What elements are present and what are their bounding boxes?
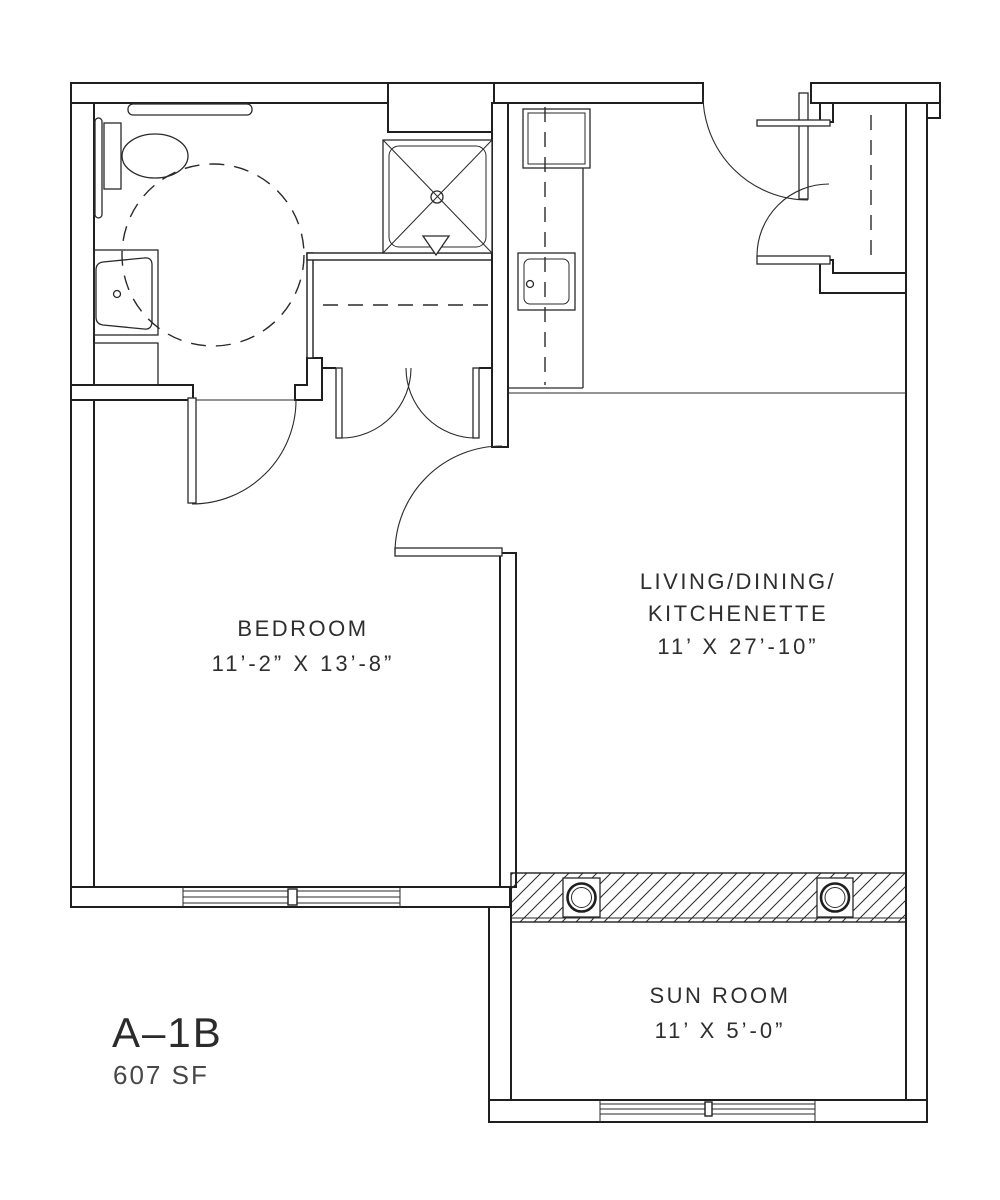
unit-area: 607 SF [113,1060,209,1090]
right-exterior-wall [906,103,927,1122]
refrigerator [523,109,590,168]
bathroom-south-wall [71,385,193,400]
base-cabinet [94,343,158,385]
sunroom-left-wall [489,887,511,1122]
bedroom-door-swing [395,446,502,553]
toilet-bowl [122,134,188,178]
vanity-counter [94,250,158,335]
closet-door-swing-left [341,368,411,438]
bathroom-door-leaf [188,398,196,503]
floor-plan-sheet: BEDROOM 11’-2” X 13’-8” LIVING/DINING/ K… [0,0,1000,1200]
hatched-wall-band [511,873,906,922]
hall-closet [322,305,492,438]
grab-bar-side [95,118,102,218]
bedroom-label: BEDROOM [237,616,368,641]
sink-faucet [527,281,534,288]
kitchen-sink-basin [524,259,569,304]
top-right-wall-step [927,103,940,118]
entry-closet-south-wall [820,260,906,293]
kitchen-sink-counter [518,253,575,310]
bathroom [94,104,304,504]
entry-door-swing [703,95,808,200]
sunroom-label: SUN ROOM [650,983,791,1008]
bedroom-living-divider-wall [500,553,516,887]
entry-closet-door-swing [757,184,829,256]
closet-door-leaf-left [336,368,342,438]
floor-plan-drawing: BEDROOM 11’-2” X 13’-8” LIVING/DINING/ K… [0,0,1000,1200]
sunroom-window-wall [489,1100,927,1122]
kitchen-spine-wall [492,103,508,447]
closet-door-leaf-right [473,368,479,438]
vanity-sink [96,258,152,329]
sink-faucet [114,291,121,298]
bedroom-door-leaf [395,548,502,556]
top-wall-entry [811,83,940,103]
living-dimensions: 11’ X 27’-10” [657,634,818,659]
sunroom-dimensions: 11’ X 5’-0” [655,1018,786,1043]
shower-closet-divider-wall [307,253,492,260]
entry [703,93,871,264]
entry-closet-door-leaf [757,256,830,264]
turning-circle [122,164,304,346]
top-wall-kitchen [494,83,703,103]
labels: BEDROOM 11’-2” X 13’-8” LIVING/DINING/ K… [112,569,836,1090]
entry-door-leaf [799,93,808,199]
entry-closet-north-jamb [820,103,833,122]
window-mullion [288,889,297,905]
unit-label: A–1B [112,1009,223,1056]
living-label-line1: LIVING/DINING/ [640,569,836,594]
bathroom-door-pier [295,358,322,400]
plumbing-chase-wall [388,83,494,132]
bedroom-dimensions: 11’-2” X 13’-8” [212,651,395,676]
bedroom-window-wall [71,887,510,907]
window-mullion [705,1102,712,1116]
bathroom-door-swing [192,400,296,504]
closet-door-swing-right [406,368,476,438]
toilet-tank [104,123,121,189]
hall-closet-left-wall [307,253,313,358]
bedroom-door [395,446,502,556]
entry-shelf [757,120,830,126]
grab-bar [128,104,252,115]
top-wall-bathroom [71,83,388,103]
shower [383,140,492,255]
kitchenette [509,107,906,393]
left-exterior-wall [71,83,94,907]
living-label-line2: KITCHENETTE [648,601,828,626]
